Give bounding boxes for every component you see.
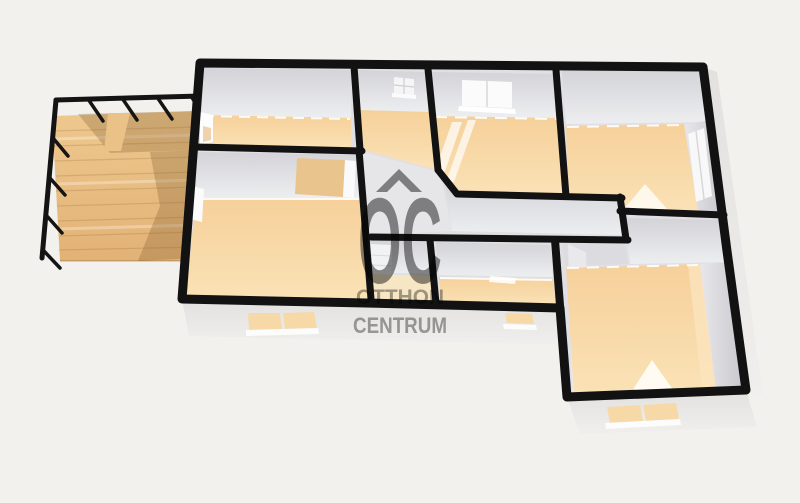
living-room-door-leaf	[295, 158, 345, 197]
wall-room1-living	[196, 147, 362, 151]
living-room	[186, 152, 371, 299]
terrace	[42, 96, 204, 268]
room-top-center	[432, 72, 566, 196]
living-room-floor	[186, 198, 371, 299]
floor-plan-screenshot: OC OTTHON CENTRUM	[0, 0, 800, 503]
room-top-left	[198, 68, 351, 149]
floor-plan-render: OC OTTHON CENTRUM	[0, 0, 800, 503]
room-top-center-window	[458, 80, 516, 114]
wall-room4-south	[620, 211, 724, 215]
watermark-brand-line1: OTTHON	[356, 286, 444, 309]
otthon-centrum-watermark: OC OTTHON CENTRUM	[353, 169, 447, 338]
room-bottom-right-back-wall-east	[624, 218, 732, 264]
bathroom-back-wall	[436, 242, 553, 277]
room-bottom-right	[562, 218, 742, 396]
bathroom	[436, 242, 556, 305]
watermark-brand-line2: CENTRUM	[353, 313, 447, 338]
room-top-right	[562, 69, 720, 213]
front-window-middle	[503, 313, 537, 330]
room-top-left-floor	[198, 115, 351, 149]
room-top-left-window-glass	[203, 126, 211, 142]
room-top-right-back-wall	[562, 69, 708, 124]
room-top-middle-back-wall	[356, 70, 430, 112]
living-room-door-opening	[343, 160, 356, 198]
room-top-middle-window-grid	[392, 77, 416, 99]
room-top-left-back-wall	[202, 68, 351, 118]
